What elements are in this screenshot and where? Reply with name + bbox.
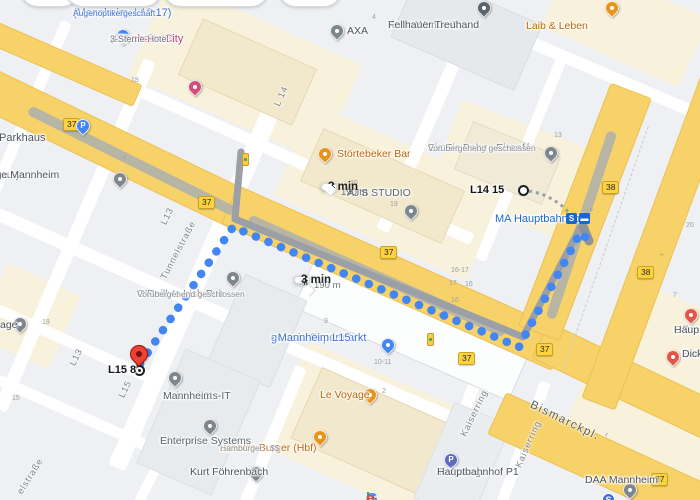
- : [610, 6, 614, 10]
- building-number: 9: [324, 318, 328, 325]
- route-shield-37: 37: [380, 246, 397, 259]
- building-number: 2: [382, 388, 386, 395]
- route-shield-37: 37: [536, 343, 553, 356]
- poi-text: Kurt Föhrenbach: [190, 467, 268, 478]
- building-number: 4: [372, 14, 376, 21]
- poi-text: Fellhauer Treuhand: [388, 20, 479, 31]
- : [173, 376, 177, 380]
- pin-glyph: [405, 205, 417, 217]
- : [689, 313, 693, 317]
- poi-text: Haup: [674, 325, 699, 336]
- sbahn-station-icon[interactable]: S: [602, 493, 615, 500]
- sbahn-icon[interactable]: S: [566, 213, 577, 224]
- poi-text: Mannheim: [163, 391, 212, 402]
- building: [390, 0, 543, 91]
- pin-glyph: [114, 173, 126, 185]
- bus-icon[interactable]: ▬: [579, 213, 590, 224]
- pin-glyph: [314, 431, 326, 443]
- route-shield-38: 38: [602, 181, 619, 194]
- : [386, 343, 390, 347]
- street-label: L15: [117, 379, 134, 400]
- poi-text: Fußpflege Mannheim: [0, 170, 59, 181]
- tooltip-distance: 190 m: [341, 187, 367, 198]
- poi-text: Augenoptikergeschäft: [73, 8, 155, 19]
- : [335, 29, 339, 33]
- : [131, 346, 147, 362]
- : [409, 209, 413, 213]
- walking-time-tooltip[interactable]: 3 min190 m: [294, 276, 310, 284]
- street-label: L13: [68, 347, 85, 368]
- : [671, 355, 675, 359]
- building-number: 20: [686, 222, 694, 229]
- : [231, 276, 235, 280]
- poi-text: Dickd: [682, 349, 700, 360]
- building-number: 18: [131, 77, 139, 84]
- : [136, 351, 142, 357]
- route-start-label: L15 8: [108, 364, 136, 376]
- poi-text: age: [0, 320, 18, 331]
- : [208, 424, 212, 428]
- pin-glyph: [545, 147, 557, 159]
- start-center-dot: [138, 369, 141, 372]
- pin-glyph: P: [77, 120, 89, 132]
- building-number: 16: [451, 297, 459, 304]
- pin-glyph: [319, 148, 331, 160]
- walking-time-tooltip[interactable]: 3 min190 m: [321, 183, 337, 191]
- building-number: 10-11: [374, 359, 391, 366]
- poi-text: AXA: [347, 26, 368, 37]
- street-label: L13: [159, 206, 176, 227]
- building-number: 13: [554, 132, 562, 139]
- pin-glyph: [685, 309, 697, 321]
- poi-text: Vorübergehend geschlossen: [428, 143, 536, 154]
- pin-glyph: [189, 81, 201, 93]
- category-chip-lebensmittel[interactable]: Lebensmittel: [163, 0, 269, 7]
- poi-text: Le Voyage: [320, 390, 370, 401]
- route-shield-37: 37: [198, 196, 215, 209]
- pin-glyph: [382, 339, 394, 351]
- building-number: 7: [673, 292, 677, 299]
- poi-text: Laib & Leben: [526, 21, 588, 32]
- pin-glyph: [169, 372, 181, 384]
- pin-glyph: [478, 2, 490, 14]
- : [193, 85, 197, 89]
- street-label: elstraße: [15, 456, 45, 496]
- : [18, 322, 22, 326]
- building-number: 16: [465, 281, 473, 288]
- pin-glyph: [606, 2, 618, 14]
- poi-text: Enterprise Systems: [160, 436, 251, 447]
- traffic-light-icon: [242, 153, 249, 166]
- route-shield-38: 38: [637, 266, 654, 279]
- building-number: 19: [42, 319, 50, 326]
- pin-glyph: [227, 272, 239, 284]
- map-canvas[interactable]: ‹‹‹‹‹‹L14 15L15 837373737373738381844-52…: [0, 0, 700, 500]
- category-chip-mehr[interactable]: Mehr: [278, 0, 342, 7]
- : [318, 435, 322, 439]
- pin-glyph: [204, 420, 216, 432]
- poi-text: DAA Mannheim: [585, 475, 658, 486]
- building-number: 17: [449, 280, 457, 287]
- route-shield-37: 37: [458, 352, 475, 365]
- building-number: 16-17: [451, 267, 469, 274]
- poi-text: 3-Sterne-Hotel: [110, 34, 169, 45]
- : [323, 152, 327, 156]
- pin-glyph: [331, 25, 343, 37]
- poi-text: Parkhaus: [0, 133, 45, 144]
- building-number: 19: [390, 201, 398, 208]
- category-chip-restaurants[interactable]: Restaurants: [65, 0, 162, 7]
- poi-text: - Mannheim L15: [271, 333, 351, 344]
- pin-glyph: [667, 351, 679, 363]
- : [628, 488, 632, 492]
- poi-text: Hauptbahnhof P1: [437, 467, 519, 478]
- pin-glyph: P: [445, 454, 457, 466]
- poi-text: Störtebeker Bar: [337, 149, 411, 160]
- traffic-light-icon: [427, 333, 434, 346]
- : [482, 6, 486, 10]
- route-destination-circle[interactable]: [518, 185, 529, 196]
- : [118, 177, 122, 181]
- tooltip-distance: 190 m: [314, 280, 340, 291]
- building-number: 15: [12, 395, 20, 402]
- : [549, 151, 553, 155]
- poi-company-pin[interactable]: [327, 21, 347, 41]
- poi-text: Vorübergehend geschlossen: [137, 289, 245, 300]
- route-end-label: L14 15: [470, 184, 504, 196]
